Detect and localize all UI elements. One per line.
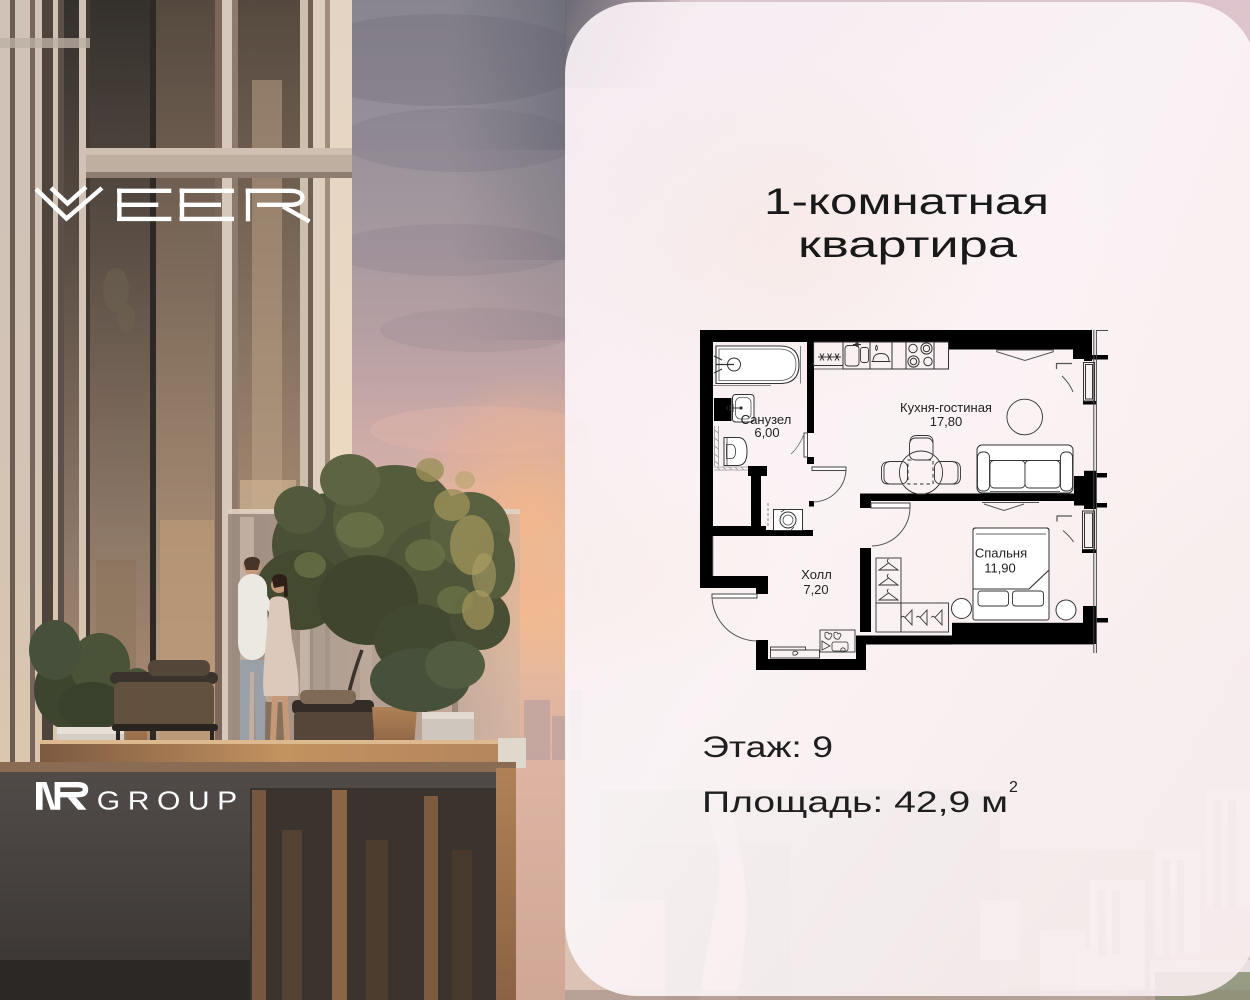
svg-text:11,90: 11,90: [984, 561, 1016, 576]
svg-text:Спальня: Спальня: [975, 546, 1027, 561]
svg-text:6,00: 6,00: [754, 425, 779, 440]
svg-text:17,80: 17,80: [930, 414, 963, 429]
svg-text:7,20: 7,20: [803, 582, 828, 597]
svg-text:квартира: квартира: [798, 224, 1018, 265]
svg-text:Площадь: 42,9 м: Площадь: 42,9 м: [702, 786, 1008, 819]
svg-text:1-комнатная: 1-комнатная: [764, 181, 1049, 222]
svg-text:GROUP: GROUP: [97, 787, 237, 815]
svg-text:Этаж: 9: Этаж: 9: [702, 731, 833, 764]
svg-text:Кухня-гостиная: Кухня-гостиная: [900, 400, 992, 415]
svg-text:Холл: Холл: [801, 567, 832, 582]
svg-text:2: 2: [1009, 779, 1018, 796]
